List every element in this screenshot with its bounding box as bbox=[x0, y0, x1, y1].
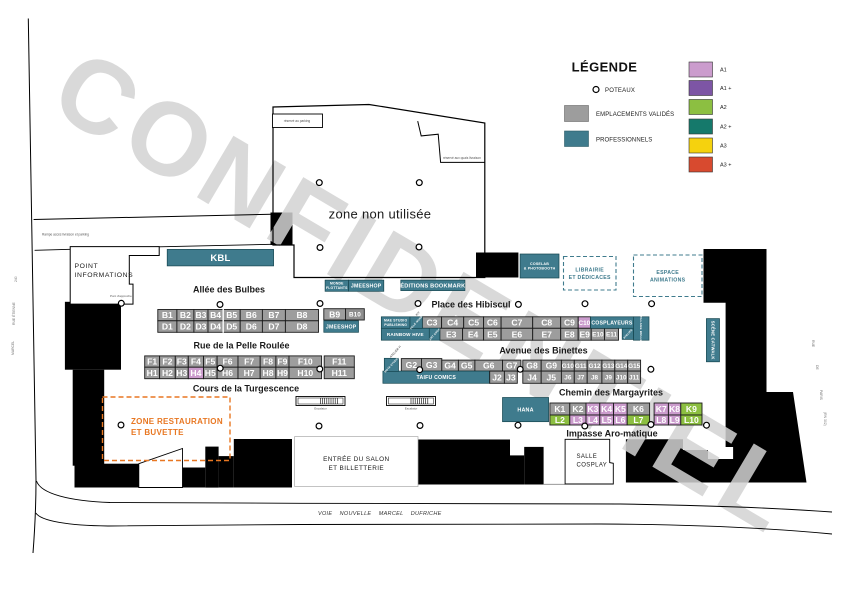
svg-text:RUE: RUE bbox=[811, 340, 815, 348]
svg-text:MARCEL: MARCEL bbox=[11, 341, 15, 355]
svg-text:Impasse Aro-matique: Impasse Aro-matique bbox=[566, 429, 657, 439]
svg-text:L4: L4 bbox=[588, 415, 598, 425]
svg-text:ZONE RESTAURATION: ZONE RESTAURATION bbox=[131, 417, 223, 426]
svg-text:EMPLACEMENTS VALIDÉS: EMPLACEMENTS VALIDÉS bbox=[596, 111, 674, 118]
svg-text:PROFESSIONNELS: PROFESSIONNELS bbox=[596, 138, 652, 144]
svg-text:TAIFU COMICS: TAIFU COMICS bbox=[417, 375, 457, 381]
svg-text:H2: H2 bbox=[162, 368, 173, 378]
svg-text:F8: F8 bbox=[263, 357, 273, 367]
svg-text:H3: H3 bbox=[176, 368, 187, 378]
svg-text:B6: B6 bbox=[246, 310, 257, 320]
svg-text:H8: H8 bbox=[263, 368, 274, 378]
svg-text:B5: B5 bbox=[226, 310, 237, 320]
svg-text:C6: C6 bbox=[487, 318, 498, 328]
svg-text:Cours de la Turgescence: Cours de la Turgescence bbox=[193, 384, 299, 394]
svg-text:F9: F9 bbox=[277, 357, 287, 367]
svg-text:J5: J5 bbox=[547, 372, 557, 382]
svg-text:réservé aux quais livraison: réservé aux quais livraison bbox=[443, 156, 481, 160]
svg-text:E3: E3 bbox=[446, 329, 457, 339]
svg-text:ET DÉDICACES: ET DÉDICACES bbox=[569, 273, 611, 281]
svg-text:G15: G15 bbox=[628, 363, 641, 370]
svg-text:J3: J3 bbox=[506, 372, 516, 382]
svg-text:C5: C5 bbox=[468, 318, 479, 328]
svg-text:J10: J10 bbox=[616, 375, 627, 382]
svg-text:F10: F10 bbox=[298, 357, 313, 367]
svg-text:G7: G7 bbox=[506, 361, 518, 371]
svg-text:COSPLAY: COSPLAY bbox=[577, 463, 608, 469]
svg-text:K1: K1 bbox=[554, 404, 565, 414]
svg-text:F3: F3 bbox=[177, 357, 187, 367]
svg-text:J2: J2 bbox=[492, 372, 502, 382]
svg-text:B10: B10 bbox=[349, 312, 361, 319]
svg-text:A1 +: A1 + bbox=[720, 86, 731, 92]
svg-text:L7: L7 bbox=[633, 415, 643, 425]
svg-text:B1: B1 bbox=[162, 310, 173, 320]
svg-text:A3 +: A3 + bbox=[720, 163, 731, 169]
svg-text:D3: D3 bbox=[195, 322, 206, 332]
svg-text:J6: J6 bbox=[564, 375, 572, 382]
svg-text:F6: F6 bbox=[223, 357, 233, 367]
svg-text:LIBRAIRIE: LIBRAIRIE bbox=[575, 268, 604, 274]
svg-text:DE: DE bbox=[815, 365, 819, 370]
svg-text:COSELAB: COSELAB bbox=[530, 262, 549, 266]
svg-text:E10: E10 bbox=[592, 332, 604, 339]
svg-text:E8: E8 bbox=[564, 329, 575, 339]
svg-text:Place des Hibiscul: Place des Hibiscul bbox=[431, 300, 510, 310]
svg-text:D8: D8 bbox=[296, 322, 307, 332]
svg-text:ANIMATIONS: ANIMATIONS bbox=[650, 278, 686, 284]
svg-text:C8: C8 bbox=[541, 318, 552, 328]
svg-text:H1: H1 bbox=[147, 368, 158, 378]
svg-text:Rue de la Pelle Roulée: Rue de la Pelle Roulée bbox=[193, 341, 289, 351]
svg-text:Rampe accès livraison et parki: Rampe accès livraison et parking bbox=[42, 233, 89, 237]
svg-text:K9: K9 bbox=[686, 404, 697, 414]
svg-text:A1: A1 bbox=[720, 68, 727, 74]
svg-text:J4: J4 bbox=[527, 372, 537, 382]
svg-text:VILLAGE BULLE: VILLAGE BULLE bbox=[639, 315, 643, 341]
svg-text:D4: D4 bbox=[210, 322, 221, 332]
svg-text:C10: C10 bbox=[578, 320, 590, 327]
svg-text:D7: D7 bbox=[268, 322, 279, 332]
svg-text:ESPACE: ESPACE bbox=[656, 270, 679, 276]
svg-text:réservé au parking: réservé au parking bbox=[284, 119, 311, 123]
svg-text:FLOTTANTS: FLOTTANTS bbox=[326, 286, 348, 290]
svg-text:L3: L3 bbox=[573, 415, 583, 425]
svg-text:G6: G6 bbox=[483, 361, 495, 371]
svg-text:ÉDITIONS BOOKMARK: ÉDITIONS BOOKMARK bbox=[400, 281, 465, 289]
svg-text:E6: E6 bbox=[512, 329, 523, 339]
svg-text:E5: E5 bbox=[487, 329, 498, 339]
svg-text:Avenue des Binettes: Avenue des Binettes bbox=[499, 346, 587, 356]
svg-text:240: 240 bbox=[14, 276, 18, 282]
svg-text:L6: L6 bbox=[615, 415, 625, 425]
svg-text:G3: G3 bbox=[426, 360, 438, 370]
svg-text:G10: G10 bbox=[562, 363, 575, 370]
svg-text:JMEESHOP: JMEESHOP bbox=[326, 324, 357, 330]
svg-text:B4: B4 bbox=[210, 310, 221, 320]
svg-text:E4: E4 bbox=[468, 329, 479, 339]
svg-text:F7: F7 bbox=[244, 357, 254, 367]
svg-text:L10: L10 bbox=[684, 415, 699, 425]
svg-text:& PHOTOBOOTH: & PHOTOBOOTH bbox=[524, 267, 556, 271]
svg-text:K3: K3 bbox=[587, 404, 598, 414]
svg-text:E7: E7 bbox=[541, 329, 552, 339]
svg-text:Escalator: Escalator bbox=[314, 407, 327, 411]
svg-text:Chemin des Margayrites: Chemin des Margayrites bbox=[559, 388, 663, 398]
svg-text:G14: G14 bbox=[615, 363, 628, 370]
svg-text:B9: B9 bbox=[329, 309, 340, 319]
svg-text:E11: E11 bbox=[606, 332, 617, 339]
svg-text:JMEESHOP: JMEESHOP bbox=[351, 284, 382, 290]
svg-text:G5: G5 bbox=[461, 361, 473, 371]
svg-text:L2: L2 bbox=[555, 415, 565, 425]
svg-text:ET BUVETTE: ET BUVETTE bbox=[131, 428, 184, 437]
svg-text:Pont d'approche: Pont d'approche bbox=[110, 294, 132, 298]
svg-text:PUBLISHING: PUBLISHING bbox=[384, 323, 407, 327]
svg-text:E9: E9 bbox=[579, 329, 590, 339]
svg-text:COSPLAYEURS: COSPLAYEURS bbox=[591, 320, 633, 326]
svg-text:G13: G13 bbox=[602, 363, 615, 370]
svg-text:G2: G2 bbox=[406, 360, 418, 370]
svg-text:SCÈNE CATWALK: SCÈNE CATWALK bbox=[710, 321, 715, 360]
svg-text:H4: H4 bbox=[190, 368, 201, 378]
svg-text:H10: H10 bbox=[297, 368, 313, 378]
svg-text:KBL: KBL bbox=[210, 253, 230, 264]
svg-text:K8: K8 bbox=[669, 404, 680, 414]
svg-text:(RN 302): (RN 302) bbox=[823, 412, 827, 426]
svg-text:G11: G11 bbox=[575, 363, 587, 370]
svg-text:C9: C9 bbox=[564, 318, 575, 328]
svg-text:L5: L5 bbox=[602, 415, 612, 425]
svg-text:B8: B8 bbox=[296, 310, 307, 320]
svg-text:J9: J9 bbox=[605, 375, 613, 382]
svg-text:PARIS: PARIS bbox=[819, 390, 823, 401]
svg-text:ENTRÉE DU SALON: ENTRÉE DU SALON bbox=[323, 454, 389, 463]
svg-text:G4: G4 bbox=[444, 361, 456, 371]
svg-text:D2: D2 bbox=[180, 322, 191, 332]
svg-text:L8: L8 bbox=[656, 415, 666, 425]
svg-text:H11: H11 bbox=[332, 368, 348, 378]
svg-text:ATELIER H: ATELIER H bbox=[389, 345, 402, 359]
svg-text:G12: G12 bbox=[589, 363, 602, 370]
svg-text:RAINBOW HIVE: RAINBOW HIVE bbox=[387, 332, 424, 337]
svg-text:Allée des Bulbes: Allée des Bulbes bbox=[193, 285, 265, 295]
svg-text:G8: G8 bbox=[526, 361, 538, 371]
svg-text:J8: J8 bbox=[591, 375, 599, 382]
svg-text:B7: B7 bbox=[268, 310, 279, 320]
svg-text:D1: D1 bbox=[162, 322, 173, 332]
svg-text:D5: D5 bbox=[226, 322, 237, 332]
svg-text:F4: F4 bbox=[191, 357, 201, 367]
svg-text:J11: J11 bbox=[629, 375, 640, 382]
svg-text:RUE ÉTIENNE: RUE ÉTIENNE bbox=[11, 301, 16, 325]
svg-text:K7: K7 bbox=[656, 404, 667, 414]
svg-text:K5: K5 bbox=[615, 404, 626, 414]
svg-text:B2: B2 bbox=[180, 310, 191, 320]
svg-text:K4: K4 bbox=[601, 404, 612, 414]
svg-text:K6: K6 bbox=[633, 404, 644, 414]
svg-text:G9: G9 bbox=[546, 361, 558, 371]
svg-text:F5: F5 bbox=[205, 357, 215, 367]
svg-text:MAE STUDIO: MAE STUDIO bbox=[384, 318, 407, 322]
svg-text:POINT: POINT bbox=[75, 263, 99, 270]
svg-text:SALLE: SALLE bbox=[577, 454, 598, 460]
svg-text:K2: K2 bbox=[572, 404, 583, 414]
svg-text:A2 +: A2 + bbox=[720, 125, 731, 131]
svg-text:J7: J7 bbox=[577, 375, 585, 382]
svg-text:C4: C4 bbox=[447, 318, 458, 328]
svg-text:D6: D6 bbox=[246, 322, 257, 332]
svg-text:POTEAUX: POTEAUX bbox=[605, 88, 635, 94]
svg-text:INFORMATIONS: INFORMATIONS bbox=[75, 272, 134, 279]
svg-text:zone non utilisée: zone non utilisée bbox=[329, 207, 432, 222]
svg-text:Escalator: Escalator bbox=[405, 407, 418, 411]
svg-text:B3: B3 bbox=[195, 310, 206, 320]
svg-text:MONDE: MONDE bbox=[330, 282, 344, 286]
svg-text:HANA: HANA bbox=[517, 408, 533, 414]
svg-text:H6: H6 bbox=[222, 368, 233, 378]
svg-text:F1: F1 bbox=[147, 357, 157, 367]
svg-text:F11: F11 bbox=[332, 357, 347, 367]
svg-text:C3: C3 bbox=[426, 318, 437, 328]
svg-text:VOIE NOUVELLE MARCEL: VOIE NOUVELLE MARCEL DUFRICHE bbox=[318, 511, 442, 517]
svg-text:H5: H5 bbox=[205, 368, 216, 378]
svg-text:H9: H9 bbox=[277, 368, 288, 378]
svg-text:H7: H7 bbox=[244, 368, 255, 378]
svg-text:L9: L9 bbox=[670, 415, 680, 425]
svg-text:ET BILLETTERIE: ET BILLETTERIE bbox=[329, 465, 385, 472]
svg-text:A2: A2 bbox=[720, 105, 727, 111]
svg-text:C7: C7 bbox=[511, 318, 522, 328]
svg-text:F2: F2 bbox=[162, 357, 172, 367]
svg-text:LÉGENDE: LÉGENDE bbox=[572, 60, 638, 75]
svg-text:A3: A3 bbox=[720, 144, 727, 150]
